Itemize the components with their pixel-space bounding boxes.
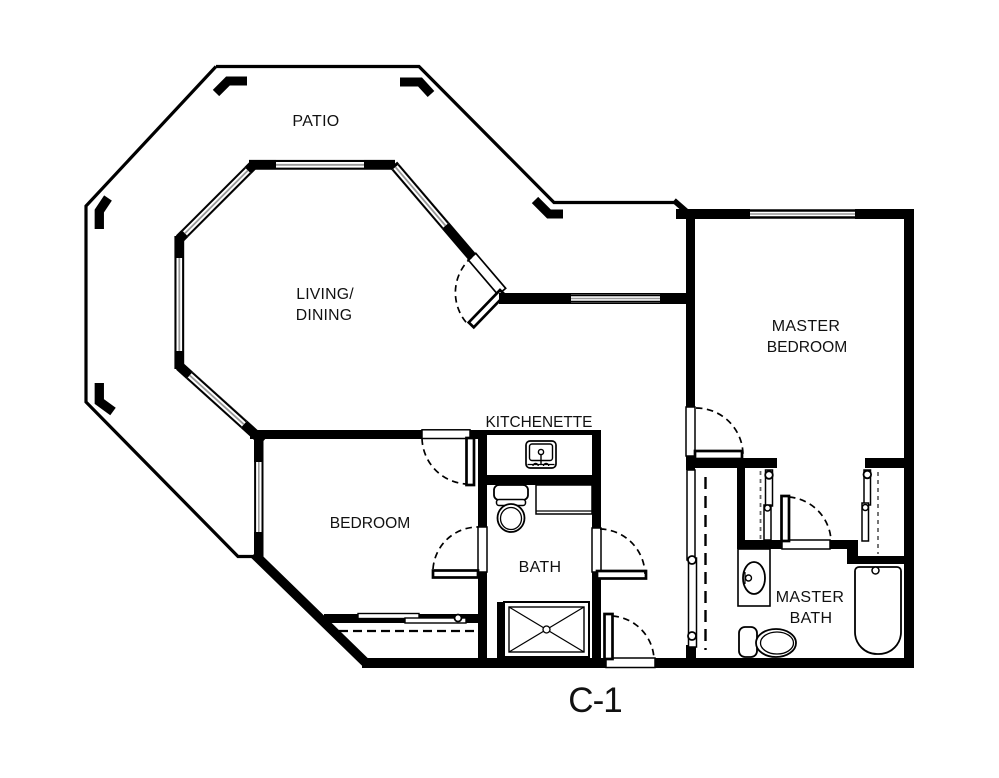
svg-text:BATH: BATH (790, 610, 833, 627)
svg-text:BEDROOM: BEDROOM (330, 515, 411, 532)
svg-text:MASTER: MASTER (772, 318, 840, 335)
svg-text:KITCHENETTE: KITCHENETTE (486, 414, 593, 431)
svg-text:DINING: DINING (296, 307, 353, 324)
svg-text:C-1: C-1 (568, 681, 621, 720)
svg-text:BEDROOM: BEDROOM (767, 339, 848, 356)
svg-text:PATIO: PATIO (292, 113, 339, 130)
svg-text:LIVING/: LIVING/ (296, 286, 354, 303)
svg-text:BATH: BATH (519, 559, 562, 576)
svg-text:MASTER: MASTER (776, 589, 844, 606)
